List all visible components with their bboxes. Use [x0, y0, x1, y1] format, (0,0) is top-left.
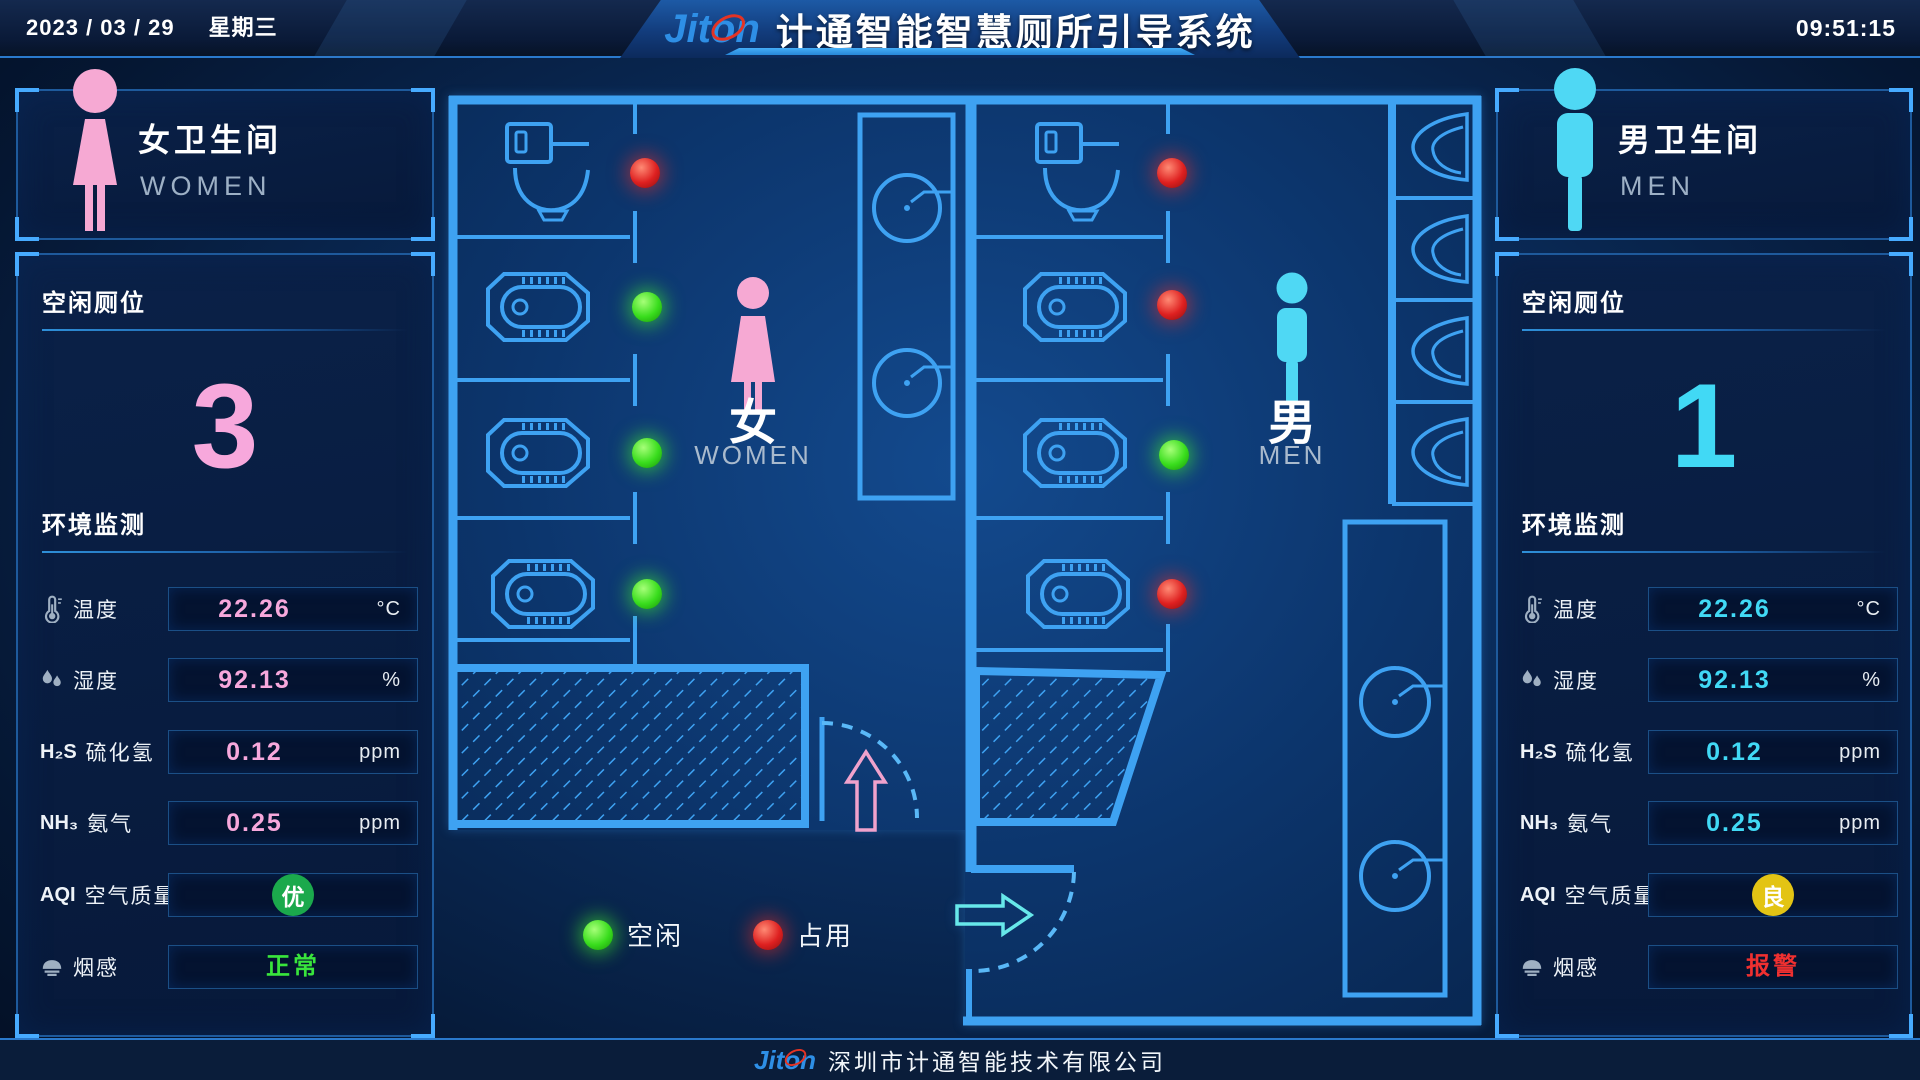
env-label: 氨气: [87, 808, 133, 838]
floorplan-floor: [449, 96, 1481, 1021]
divider-line: [1522, 329, 1886, 331]
smoke-status: 正常: [169, 946, 417, 988]
smoke-value-box: 报警: [1648, 945, 1898, 989]
h2s-value-box: 0.12 ppm: [1648, 730, 1898, 774]
corner-accent: [1495, 252, 1519, 276]
women-stall-1-indicator: [630, 158, 660, 188]
women-zone-sublabel: WOMEN: [693, 440, 813, 471]
humidity-value: 92.13: [1657, 659, 1812, 701]
women-stall-4-indicator: [632, 579, 662, 609]
humidity-value-box: 92.13 %: [1648, 658, 1898, 702]
weekday-text: 星期三: [209, 15, 278, 40]
environment-heading: 环境监测: [1522, 505, 1626, 540]
date-text: 2023 / 03 / 29: [26, 15, 175, 40]
men-zone-sublabel: MEN: [1232, 440, 1352, 471]
temperature-value-box: 22.26 °C: [168, 587, 418, 631]
men-stall-3-indicator: [1159, 440, 1189, 470]
header-deco-right: [1453, 0, 1606, 58]
page-title: 计通智能智慧厕所引导系统: [776, 2, 1256, 56]
women-room-subtitle: WOMEN: [140, 171, 271, 202]
environment-heading: 环境监测: [42, 505, 146, 540]
h2s-prefix: H₂S: [40, 741, 77, 764]
men-header-panel: 男卫生间 MEN: [1496, 89, 1912, 240]
header-bar: 2023 / 03 / 29星期三 Jiton 计通智能智慧厕所引导系统 09:…: [0, 0, 1920, 58]
jiton-logo-icon: Jiton: [664, 7, 764, 52]
humidity-unit: %: [382, 659, 401, 701]
nh3-unit: ppm: [359, 802, 401, 844]
corner-accent: [1889, 88, 1913, 112]
corner-accent: [411, 252, 435, 276]
nh3-value-box: 0.25 ppm: [1648, 801, 1898, 845]
women-stall-2-indicator: [632, 292, 662, 322]
header-date: 2023 / 03 / 29星期三: [26, 0, 278, 56]
humidity-value: 92.13: [177, 659, 332, 701]
nh3-value: 0.25: [177, 802, 332, 844]
thermometer-icon: [1520, 595, 1544, 623]
corner-accent: [15, 217, 39, 241]
legend-occupied-label: 占用: [797, 916, 853, 953]
nh3-value: 0.25: [1657, 802, 1812, 844]
aqi-prefix: AQI: [1520, 884, 1556, 907]
jiton-logo-small-icon: Jiton: [754, 1045, 818, 1076]
corner-accent: [15, 1014, 39, 1038]
env-label: 烟感: [73, 952, 119, 982]
woman-pictogram-icon: [64, 67, 126, 239]
nh3-prefix: NH₃: [40, 812, 78, 835]
humidity-unit: %: [1862, 659, 1881, 701]
env-label: 氨气: [1567, 808, 1613, 838]
women-header-panel: 女卫生间 WOMEN: [16, 89, 434, 240]
men-room-subtitle: MEN: [1620, 171, 1695, 202]
env-label: 空气质量: [1565, 880, 1657, 910]
women-stall-3-indicator: [632, 438, 662, 468]
h2s-value: 0.12: [1657, 731, 1812, 773]
women-room-title: 女卫生间: [138, 115, 282, 161]
corner-accent: [411, 1014, 435, 1038]
h2s-value-box: 0.12 ppm: [168, 730, 418, 774]
temperature-value: 22.26: [177, 588, 332, 630]
env-row-smoke: 烟感 正常: [40, 945, 416, 991]
env-label: 湿度: [1553, 665, 1599, 695]
humidity-icon: [40, 666, 64, 694]
h2s-unit: ppm: [1839, 731, 1881, 773]
env-label: 温度: [1553, 594, 1599, 624]
smoke-status: 报警: [1649, 946, 1897, 988]
header-underline: [725, 48, 1195, 55]
h2s-prefix: H₂S: [1520, 741, 1557, 764]
env-row-aqi: AQI 空气质量 良: [1520, 873, 1894, 919]
corner-accent: [1889, 217, 1913, 241]
aqi-value-box: 良: [1648, 873, 1898, 917]
smoke-value-box: 正常: [168, 945, 418, 989]
women-service-area: [453, 668, 805, 824]
env-row-temperature: 温度 22.26 °C: [40, 587, 416, 633]
env-row-humidity: 湿度 92.13 %: [1520, 658, 1894, 704]
smart-toilet-dashboard: { "header": { "date": "2023 / 03 / 29", …: [0, 0, 1920, 1080]
corner-accent: [15, 252, 39, 276]
env-label: 硫化氢: [86, 737, 155, 767]
humidity-icon: [1520, 666, 1544, 694]
env-label: 空气质量: [85, 880, 177, 910]
header-deco-left: [313, 0, 466, 58]
temperature-unit: °C: [377, 588, 401, 630]
legend-free-dot-icon: [583, 920, 613, 950]
divider-line: [42, 329, 408, 331]
nh3-prefix: NH₃: [1520, 812, 1558, 835]
corner-accent: [1889, 252, 1913, 276]
env-row-temperature: 温度 22.26 °C: [1520, 587, 1894, 633]
thermometer-icon: [40, 595, 64, 623]
man-pictogram-icon: [1544, 67, 1606, 239]
header-clock: 09:51:15: [1796, 0, 1896, 56]
temperature-value-box: 22.26 °C: [1648, 587, 1898, 631]
men-room-title: 男卫生间: [1618, 115, 1762, 161]
temperature-value: 22.26: [1657, 588, 1812, 630]
divider-line: [1522, 551, 1886, 553]
corner-accent: [15, 88, 39, 112]
legend-free-label: 空闲: [627, 916, 683, 953]
aqi-value-box: 优: [168, 873, 418, 917]
env-label: 烟感: [1553, 952, 1599, 982]
env-row-nh3: NH₃ 氨气 0.25 ppm: [40, 801, 416, 847]
env-row-aqi: AQI 空气质量 优: [40, 873, 416, 919]
env-row-nh3: NH₃ 氨气 0.25 ppm: [1520, 801, 1894, 847]
legend-occupied-dot-icon: [753, 920, 783, 950]
corner-accent: [1495, 217, 1519, 241]
women-free-stall-count: 3: [18, 351, 432, 501]
status-legend: 空闲 占用: [583, 916, 853, 953]
env-label: 硫化氢: [1566, 737, 1635, 767]
company-name: 深圳市计通智能技术有限公司: [828, 1043, 1166, 1077]
women-stats-panel: 空闲厕位 3 环境监测 温度 22.26 °C 湿度 92.13 %: [16, 253, 434, 1037]
corner-accent: [411, 88, 435, 112]
humidity-value-box: 92.13 %: [168, 658, 418, 702]
temperature-unit: °C: [1857, 588, 1881, 630]
smoke-detector-icon: [1520, 953, 1544, 981]
aqi-prefix: AQI: [40, 884, 76, 907]
free-stalls-heading: 空闲厕位: [1522, 283, 1626, 318]
nh3-unit: ppm: [1839, 802, 1881, 844]
smoke-detector-icon: [40, 953, 64, 981]
aqi-status-badge: 优: [272, 874, 314, 916]
free-stalls-heading: 空闲厕位: [42, 283, 146, 318]
h2s-value: 0.12: [177, 731, 332, 773]
env-row-h2s: H₂S 硫化氢 0.12 ppm: [40, 730, 416, 776]
env-label: 温度: [73, 594, 119, 624]
corner-accent: [1495, 1014, 1519, 1038]
divider-line: [42, 551, 408, 553]
env-row-h2s: H₂S 硫化氢 0.12 ppm: [1520, 730, 1894, 776]
corner-accent: [1495, 88, 1519, 112]
nh3-value-box: 0.25 ppm: [168, 801, 418, 845]
env-row-humidity: 湿度 92.13 %: [40, 658, 416, 704]
corner-accent: [1889, 1014, 1913, 1038]
footer-bar: Jiton 深圳市计通智能技术有限公司: [0, 1038, 1920, 1080]
men-free-stall-count: 1: [1498, 351, 1910, 501]
aqi-status-badge: 良: [1752, 874, 1794, 916]
men-stall-4-indicator: [1157, 579, 1187, 609]
men-stats-panel: 空闲厕位 1 环境监测 温度 22.26 °C 湿度 92.13 %: [1496, 253, 1912, 1037]
env-label: 湿度: [73, 665, 119, 695]
corner-accent: [411, 217, 435, 241]
h2s-unit: ppm: [359, 731, 401, 773]
men-stall-1-indicator: [1157, 158, 1187, 188]
env-row-smoke: 烟感 报警: [1520, 945, 1894, 991]
men-stall-2-indicator: [1157, 290, 1187, 320]
floorplan-svg: [445, 90, 1490, 1035]
